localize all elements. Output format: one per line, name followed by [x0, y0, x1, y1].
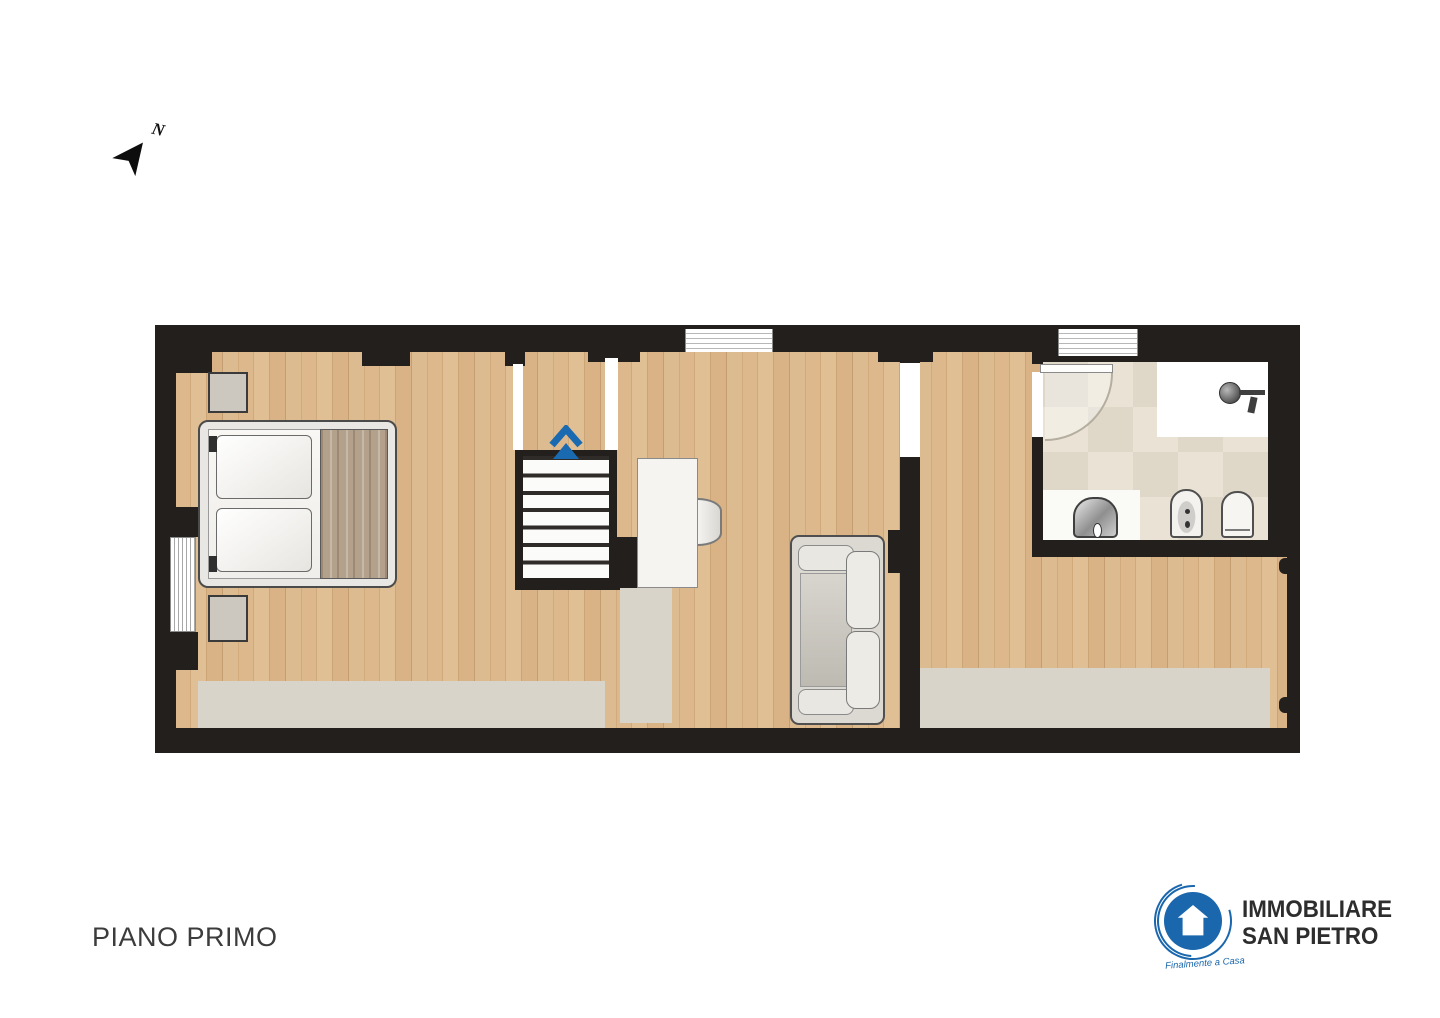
logo-circle	[1164, 892, 1222, 950]
right-room-rug	[920, 668, 1270, 728]
floor-plan	[155, 325, 1300, 753]
bidet-faucet-dot2	[1185, 521, 1190, 528]
stairs	[523, 456, 609, 578]
stairs-up-arrow-icon	[547, 425, 585, 473]
wall-hinge-bump-lower	[1279, 697, 1295, 713]
wall-corner-top-left	[155, 325, 212, 373]
shower-head-icon	[1219, 382, 1241, 404]
doorway-hall-living	[605, 358, 618, 450]
sofa-back-cushion-bottom	[846, 631, 880, 709]
window-bathroom	[1058, 329, 1138, 356]
bathroom-door-leaf	[1040, 364, 1113, 373]
nightstand-top	[208, 372, 248, 413]
doorway-bedroom-hall	[513, 364, 523, 450]
bed-post-bottom	[209, 556, 217, 572]
bed-pillow-top	[216, 435, 312, 499]
compass-north-label: N	[150, 119, 167, 141]
bed-blanket	[320, 429, 388, 579]
floor-label: PIANO PRIMO	[92, 922, 278, 953]
wall-pillar-bedroom	[362, 352, 410, 366]
brand-name-line2: SAN PIETRO	[1242, 923, 1378, 950]
radiator-window-left	[170, 537, 196, 632]
shower-arm	[1239, 390, 1265, 395]
sofa	[790, 535, 885, 725]
window-living-room	[685, 329, 773, 352]
bedroom-rug	[198, 681, 605, 728]
wall-chunk-below-radiator	[168, 632, 198, 670]
bathroom-left-wall	[1032, 437, 1043, 557]
bed-post-top	[209, 436, 217, 452]
bidet-faucet-dot1	[1185, 509, 1190, 514]
sink	[1073, 497, 1118, 538]
stair-protrusion	[617, 537, 637, 590]
wall-hinge-bump-upper	[1279, 558, 1295, 574]
doorway-bathroom	[1032, 372, 1043, 437]
logo-tagline: Finalmente a Casa	[1150, 954, 1260, 973]
wall-right-upper	[1268, 325, 1300, 557]
toilet	[1221, 491, 1254, 538]
bathroom-bottom-wall	[1032, 540, 1268, 557]
bidet	[1170, 489, 1203, 538]
agency-logo: Finalmente a Casa IMMOBILIARE SAN PIETRO	[1156, 886, 1416, 981]
compass: ➤ N	[112, 122, 182, 192]
house-icon	[1173, 901, 1213, 941]
double-bed	[198, 420, 397, 588]
doorway-living-right	[900, 363, 920, 457]
wall-living-protrusion	[888, 530, 920, 573]
toilet-seat-line	[1225, 529, 1250, 531]
desk	[637, 458, 698, 588]
bed-pillow-bottom	[216, 508, 312, 572]
nightstand-bottom	[208, 595, 248, 642]
sofa-seat	[800, 573, 852, 687]
living-room-rug	[620, 588, 672, 723]
sofa-back-cushion-top	[846, 551, 880, 629]
brand-name-line1: IMMOBILIARE	[1242, 896, 1392, 923]
wall-chunk-above-radiator	[168, 507, 198, 537]
desk-chair	[698, 498, 722, 546]
sink-faucet	[1093, 523, 1102, 538]
